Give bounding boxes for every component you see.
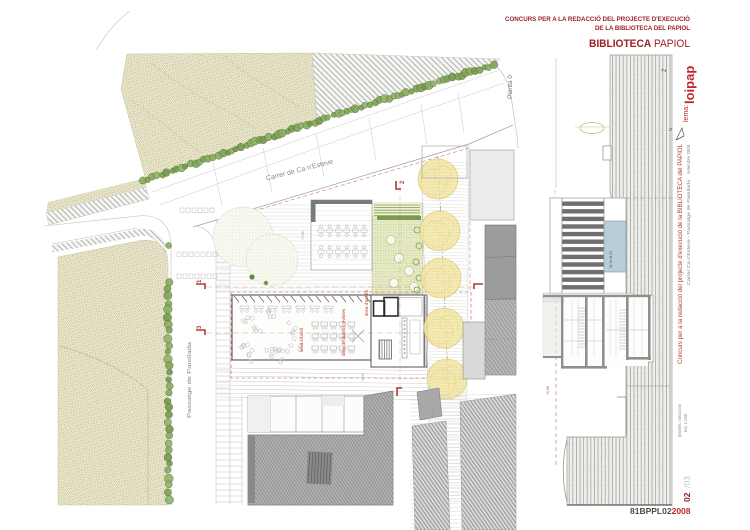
svg-text:Passatge de Parellada: Passatge de Parellada — [187, 341, 193, 418]
svg-text:àrea de diaris i revistes: àrea de diaris i revistes — [341, 308, 346, 356]
svg-text:+4.60: +4.60 — [361, 373, 365, 382]
svg-text:Concurs per a la redacció del: Concurs per a la redacció del projecte d… — [677, 144, 684, 364]
svg-text:2: 2 — [400, 180, 406, 184]
svg-text:setembre 2008: setembre 2008 — [686, 144, 691, 174]
svg-text:DE LA BIBLIOTECA DEL PAPIOL: DE LA BIBLIOTECA DEL PAPIOL — [595, 25, 690, 32]
svg-text:N: N — [668, 128, 673, 131]
svg-text:Planta 0: Planta 0 — [507, 75, 514, 99]
svg-text:Carrer Ca n'Esteve - Passatge: Carrer Ca n'Esteve - Passatge de Parella… — [686, 179, 691, 285]
svg-text:loipap: loipap — [682, 66, 697, 104]
svg-text:02: 02 — [682, 492, 692, 502]
svg-text:+4.85: +4.85 — [301, 231, 305, 240]
svg-text:81BPPL022008: 81BPPL022008 — [630, 506, 691, 516]
svg-text:1: 1 — [197, 279, 203, 283]
svg-text:àrea infantil: àrea infantil — [299, 328, 304, 352]
svg-text:CONCURS PER A LA REDACCIÓ DEL: CONCURS PER A LA REDACCIÓ DEL PROJECTE D… — [505, 14, 690, 23]
svg-text:+0,00: +0,00 — [546, 386, 550, 395]
svg-text:Carrer de Ca n'Esteve: Carrer de Ca n'Esteve — [265, 158, 334, 182]
svg-text:+4.40: +4.40 — [431, 407, 435, 416]
svg-text:/03: /03 — [682, 476, 692, 488]
svg-text:lema:: lema: — [683, 105, 690, 122]
svg-text:plantes i seccions: plantes i seccions — [677, 404, 682, 437]
svg-text:esc 1:250: esc 1:250 — [683, 413, 688, 432]
svg-text:M M M M: M M M M — [608, 251, 613, 268]
svg-text:3: 3 — [197, 325, 203, 329]
svg-text:àrea d'accés: àrea d'accés — [364, 289, 369, 316]
svg-text:BIBLIOTECA PAPIOL: BIBLIOTECA PAPIOL — [589, 38, 690, 50]
